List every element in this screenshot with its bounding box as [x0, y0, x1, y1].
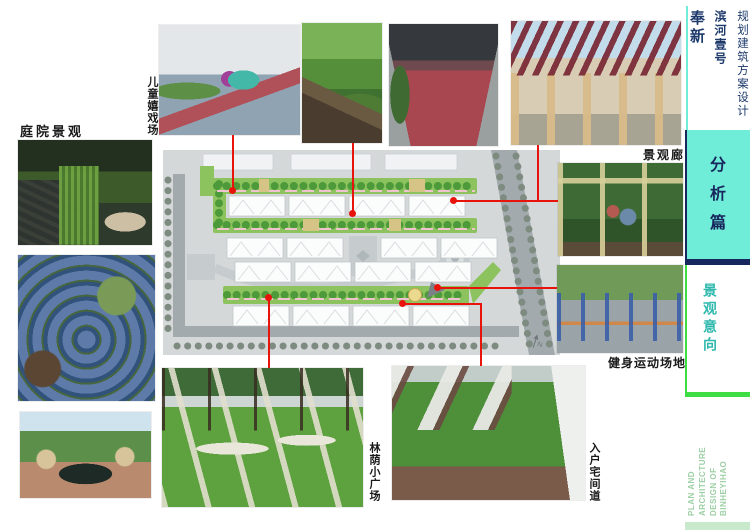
mint-bottom-bar	[685, 522, 750, 530]
project-name-title: 滨河壹号	[712, 10, 729, 134]
green-divider-bar	[685, 392, 750, 397]
photo-red-brick-path	[389, 24, 498, 146]
presentation-board: N 庭院景观 儿童嬉戏场 景观廊 健身运动场地 林荫小广场 入户宅间道 规划建筑…	[0, 0, 750, 530]
callout-dot-entry	[399, 300, 406, 307]
site-plan-map: N	[163, 150, 560, 355]
photo-wooden-boardwalk	[302, 23, 382, 143]
callout-line-boardwalk	[352, 143, 354, 214]
photo-shaded-plaza	[162, 368, 363, 507]
photo-fountain-feature	[20, 412, 151, 498]
callout-dot-corridor	[450, 197, 457, 204]
photo-landscape-corridor	[511, 21, 681, 145]
photo-entry-path-houses	[392, 366, 585, 500]
label-entry-path: 入户宅间道	[586, 442, 602, 506]
photo-fitness-equipment	[557, 265, 683, 353]
callout-line-fitness	[437, 287, 557, 289]
callout-dot-playground	[229, 187, 236, 194]
label-shaded-plaza: 林荫小广场	[366, 442, 382, 506]
callout-dot-plaza	[265, 294, 272, 301]
callout-line-entry-v	[480, 303, 482, 366]
section-badge-analysis: 分析篇	[685, 130, 750, 259]
project-type-title: 规划建筑方案设计	[734, 10, 750, 134]
title-block: 规划建筑方案设计 滨河壹号 奉新	[686, 6, 750, 134]
photo-exercise-frame	[558, 163, 683, 256]
callout-line-pergola	[537, 145, 539, 202]
callout-dot-fitness	[434, 284, 441, 291]
label-children-playground: 儿童嬉戏场	[144, 76, 160, 138]
callout-dot-boardwalk	[349, 210, 356, 217]
section-title-text: 景观意向	[700, 283, 720, 355]
label-fitness-area: 健身运动场地	[608, 354, 686, 371]
section-landscape-intent: 景观意向	[685, 265, 750, 392]
callout-line-playground	[232, 135, 234, 191]
footer-line-3: BINHEYIHAO	[719, 404, 730, 516]
label-courtyard-landscape: 庭院景观	[20, 121, 84, 140]
photo-stone-paving-garden	[18, 255, 155, 401]
callout-line-entry-h	[402, 303, 482, 305]
footer-line-2: DESIGN OF	[709, 404, 720, 516]
photo-children-playground	[159, 25, 300, 135]
footer-line-1: PLAN AND ARCHITECTURE	[687, 404, 709, 516]
label-landscape-corridor: 景观廊	[643, 146, 685, 163]
footer-english-title: PLAN AND ARCHITECTURE DESIGN OF BINHEYIH…	[687, 404, 730, 516]
photo-courtyard-landscape	[18, 140, 152, 245]
callout-line-plaza	[268, 297, 270, 368]
project-location-title: 奉新	[686, 10, 707, 134]
callout-line-corridor	[453, 200, 558, 202]
section-badge-text: 分析篇	[703, 156, 727, 243]
